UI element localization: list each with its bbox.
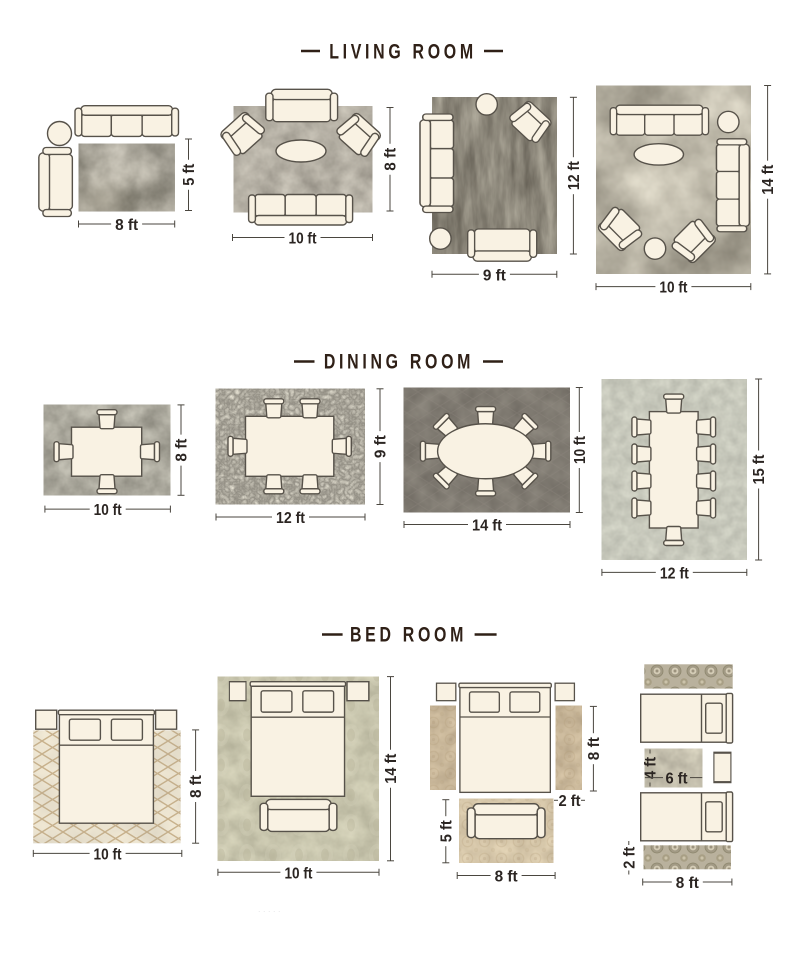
svg-text:DINING ROOM: DINING ROOM xyxy=(324,350,474,374)
svg-text:15 ft: 15 ft xyxy=(751,455,768,485)
svg-text:4 ft: 4 ft xyxy=(643,757,660,779)
svg-text:BED ROOM: BED ROOM xyxy=(350,623,467,647)
svg-text:9 ft: 9 ft xyxy=(483,267,506,284)
svg-text:8 ft: 8 ft xyxy=(383,148,400,171)
svg-text:8 ft: 8 ft xyxy=(174,439,191,462)
svg-text:14 ft: 14 ft xyxy=(760,165,777,195)
svg-text:8 ft: 8 ft xyxy=(586,737,603,760)
svg-text:8 ft: 8 ft xyxy=(676,875,699,892)
svg-text:8 ft: 8 ft xyxy=(495,869,518,886)
svg-text:14 ft: 14 ft xyxy=(472,518,502,535)
svg-text:14 ft: 14 ft xyxy=(383,754,400,784)
svg-text:2 ft: 2 ft xyxy=(621,847,638,869)
svg-text:8 ft: 8 ft xyxy=(188,775,205,798)
svg-text:10 ft: 10 ft xyxy=(284,865,312,882)
svg-text:10 ft: 10 ft xyxy=(659,280,687,297)
svg-text:5 ft: 5 ft xyxy=(438,820,455,842)
svg-text:12 ft: 12 ft xyxy=(660,565,689,582)
svg-text:10 ft: 10 ft xyxy=(289,231,317,248)
svg-text:. . . . .: . . . . . xyxy=(258,904,281,914)
svg-text:12 ft: 12 ft xyxy=(276,510,305,527)
svg-text:LIVING ROOM: LIVING ROOM xyxy=(329,40,477,64)
svg-text:8 ft: 8 ft xyxy=(115,217,138,234)
svg-text:10 ft: 10 ft xyxy=(572,436,589,464)
svg-text:9 ft: 9 ft xyxy=(373,435,390,458)
svg-text:12 ft: 12 ft xyxy=(566,161,583,190)
svg-text:10 ft: 10 ft xyxy=(94,846,122,863)
svg-text:6 ft: 6 ft xyxy=(666,771,688,788)
svg-text:10 ft: 10 ft xyxy=(94,502,122,519)
svg-text:2 ft: 2 ft xyxy=(559,793,581,810)
svg-text:5 ft: 5 ft xyxy=(181,164,198,186)
